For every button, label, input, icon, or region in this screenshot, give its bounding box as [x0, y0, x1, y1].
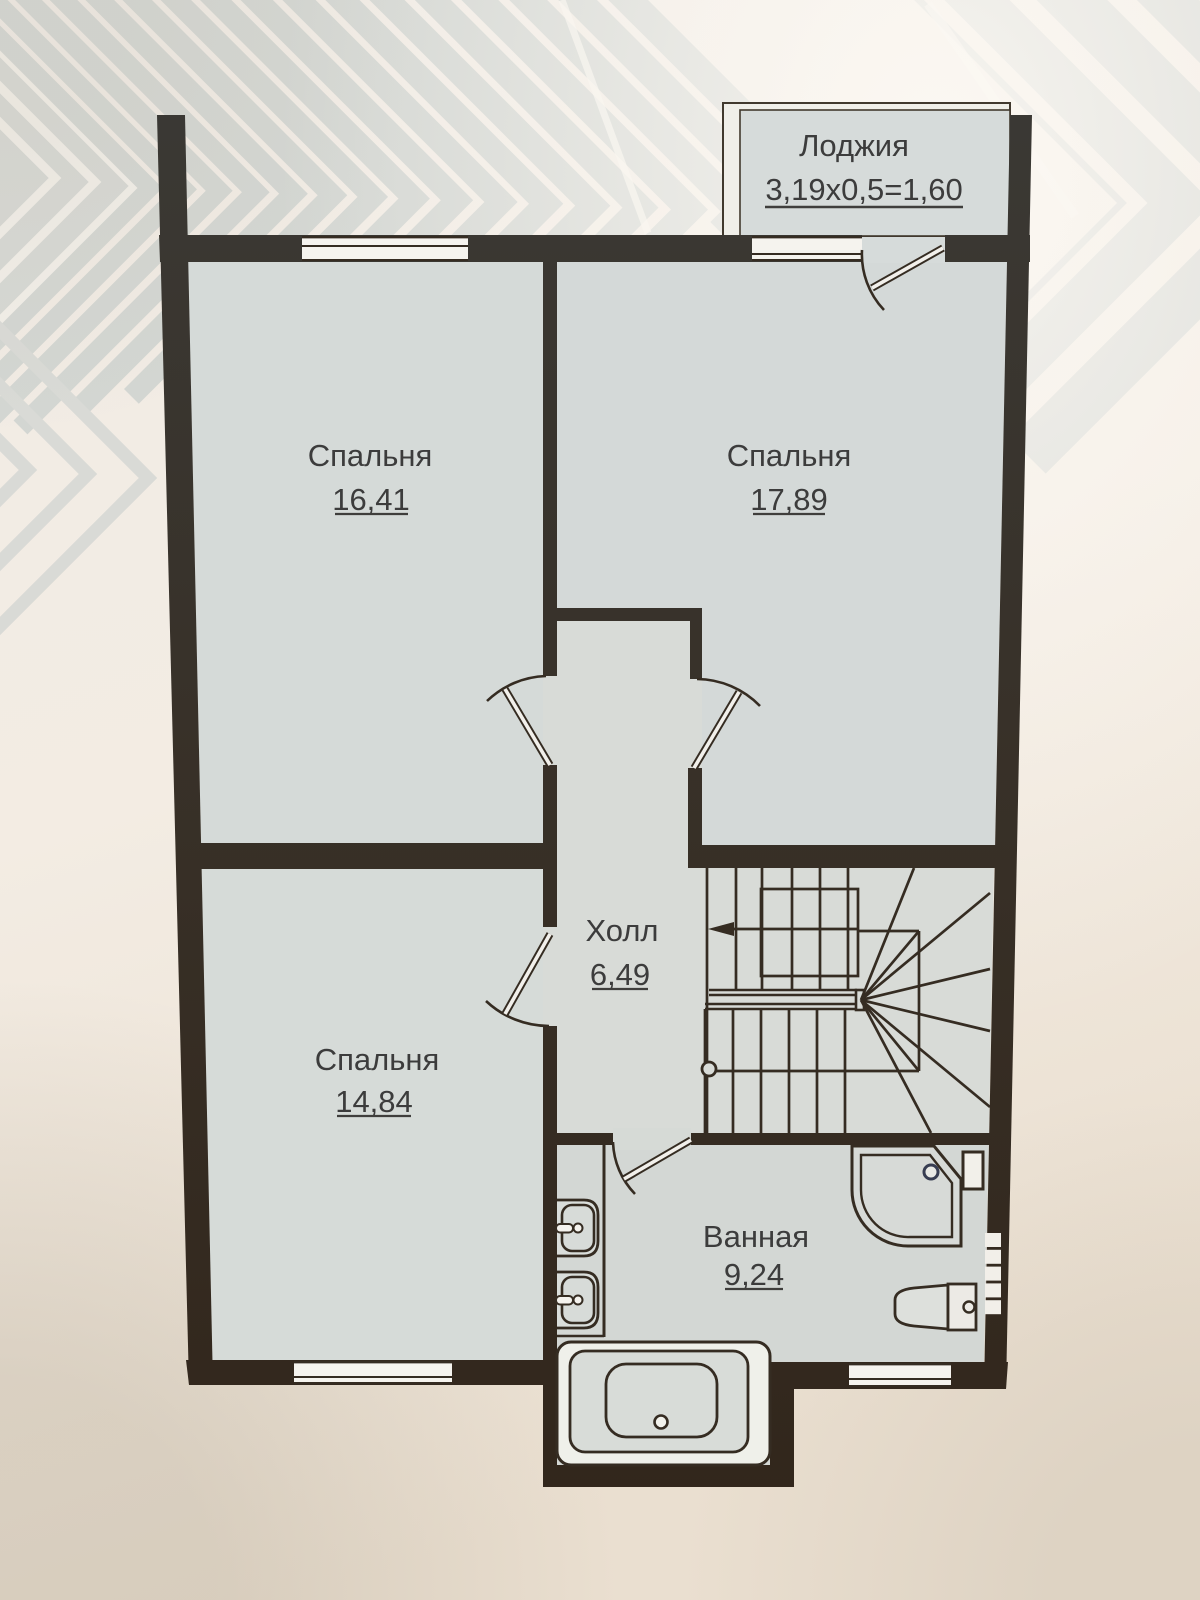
svg-text:Спальня: Спальня — [315, 1042, 440, 1077]
svg-text:16,41: 16,41 — [332, 482, 410, 517]
svg-text:17,89: 17,89 — [750, 482, 828, 517]
svg-text:Ванная: Ванная — [703, 1219, 809, 1254]
svg-text:9,24: 9,24 — [724, 1257, 784, 1292]
svg-text:6,49: 6,49 — [590, 957, 650, 992]
svg-text:14,84: 14,84 — [335, 1084, 413, 1119]
svg-text:3,19х0,5=1,60: 3,19х0,5=1,60 — [765, 172, 962, 207]
svg-text:Спальня: Спальня — [727, 438, 852, 473]
svg-text:Лоджия: Лоджия — [799, 128, 909, 163]
svg-text:Холл: Холл — [585, 913, 658, 948]
svg-text:Спальня: Спальня — [308, 438, 433, 473]
